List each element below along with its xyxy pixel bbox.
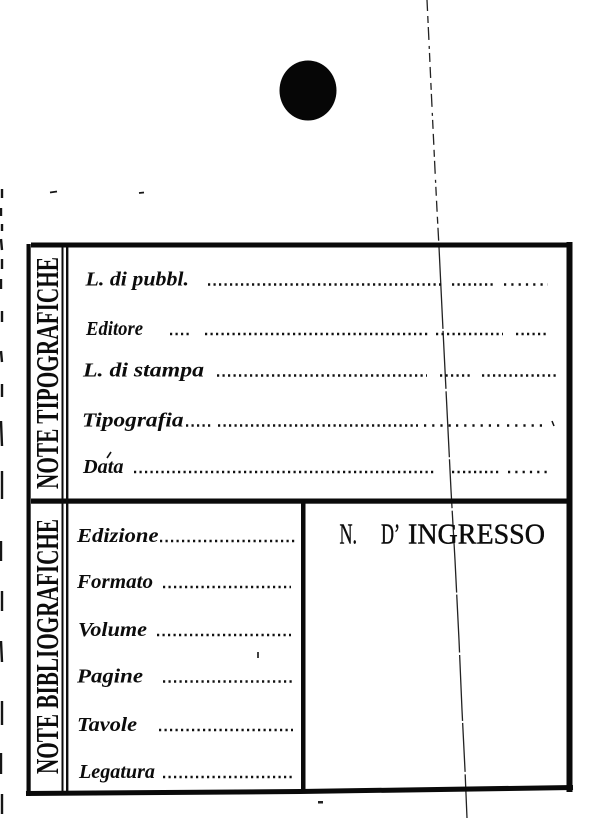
svg-text:Data: Data bbox=[82, 456, 123, 478]
svg-text:Edizione: Edizione bbox=[76, 525, 159, 547]
svg-text:Volume: Volume bbox=[78, 619, 147, 641]
svg-text:Tipografia: Tipografia bbox=[82, 410, 184, 432]
svg-text:L. di stampa: L. di stampa bbox=[82, 360, 204, 382]
svg-text:NOTE BIBLIOGRAFICHE: NOTE BIBLIOGRAFICHE bbox=[29, 519, 65, 774]
svg-text:Pagine: Pagine bbox=[76, 666, 143, 688]
svg-text:Editore: Editore bbox=[85, 318, 143, 340]
svg-text:NOTE TIPOGRAFICHE: NOTE TIPOGRAFICHE bbox=[29, 257, 65, 489]
svg-text:L. di pubbl.: L. di pubbl. bbox=[84, 269, 189, 291]
svg-text:Formato: Formato bbox=[76, 571, 153, 593]
svg-text:N.: N. bbox=[340, 519, 358, 551]
svg-text:Legatura: Legatura bbox=[78, 761, 155, 783]
svg-text:Tavole: Tavole bbox=[77, 714, 137, 736]
svg-text:INGRESSO: INGRESSO bbox=[408, 519, 545, 551]
svg-text:D’: D’ bbox=[381, 519, 400, 551]
